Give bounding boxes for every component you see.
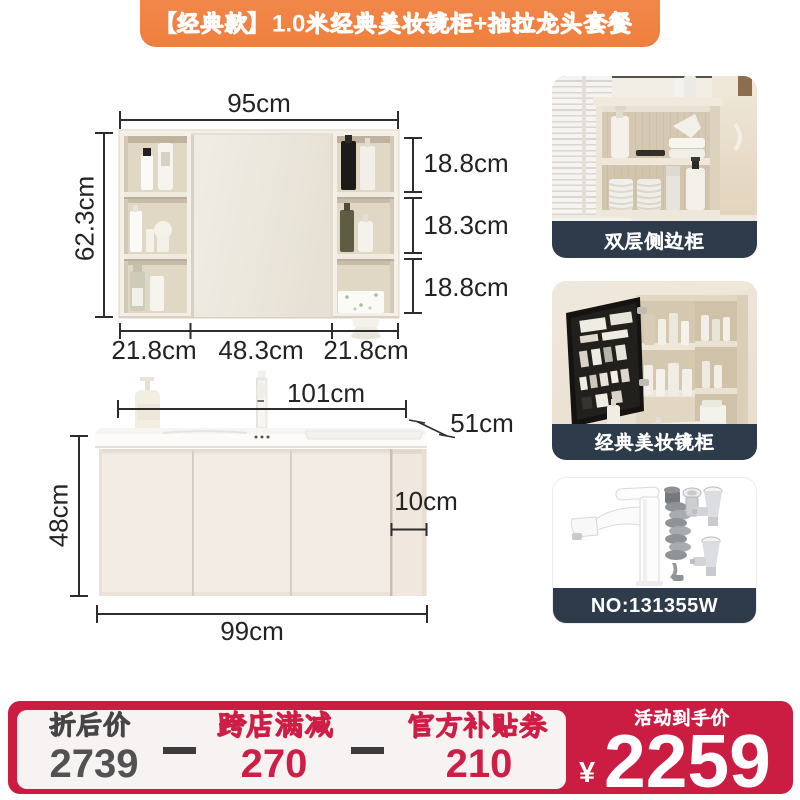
svg-text:+: + (474, 10, 488, 37)
svg-text:1.0: 1.0 (272, 10, 305, 37)
